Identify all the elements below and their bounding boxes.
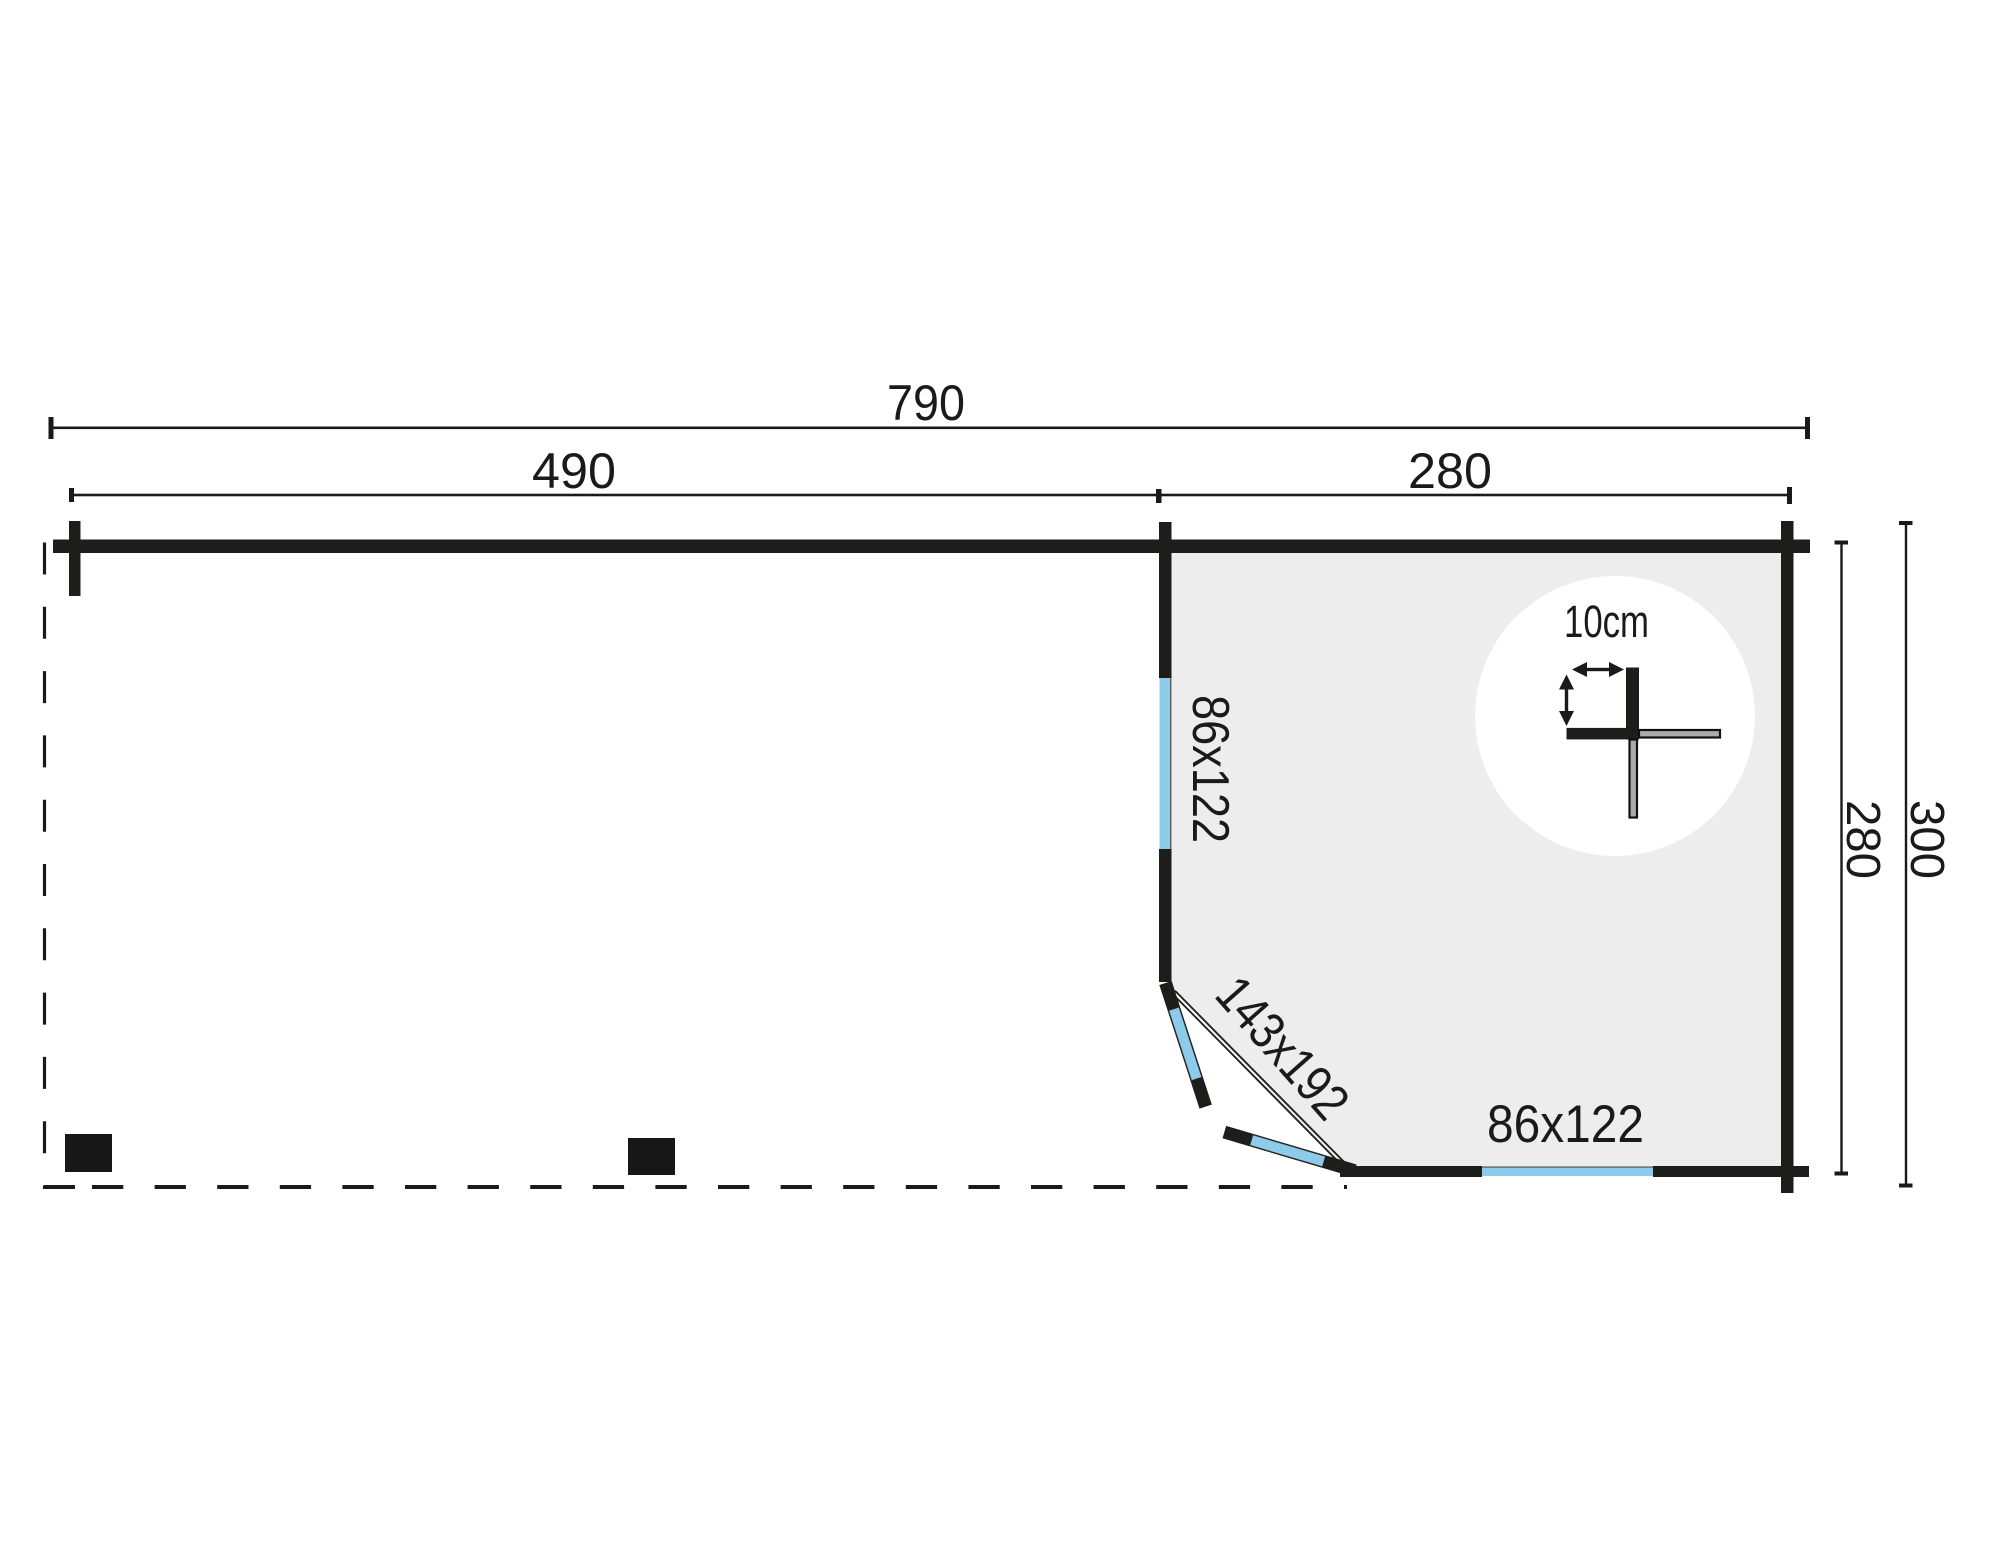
svg-text:280: 280 — [1836, 800, 1889, 879]
svg-text:300: 300 — [1900, 800, 1953, 879]
svg-text:490: 490 — [532, 443, 616, 499]
svg-text:86x122: 86x122 — [1181, 695, 1239, 843]
svg-text:280: 280 — [1408, 443, 1492, 499]
svg-text:86x122: 86x122 — [1487, 1095, 1644, 1154]
svg-text:790: 790 — [887, 375, 965, 431]
svg-text:10cm: 10cm — [1564, 596, 1649, 647]
